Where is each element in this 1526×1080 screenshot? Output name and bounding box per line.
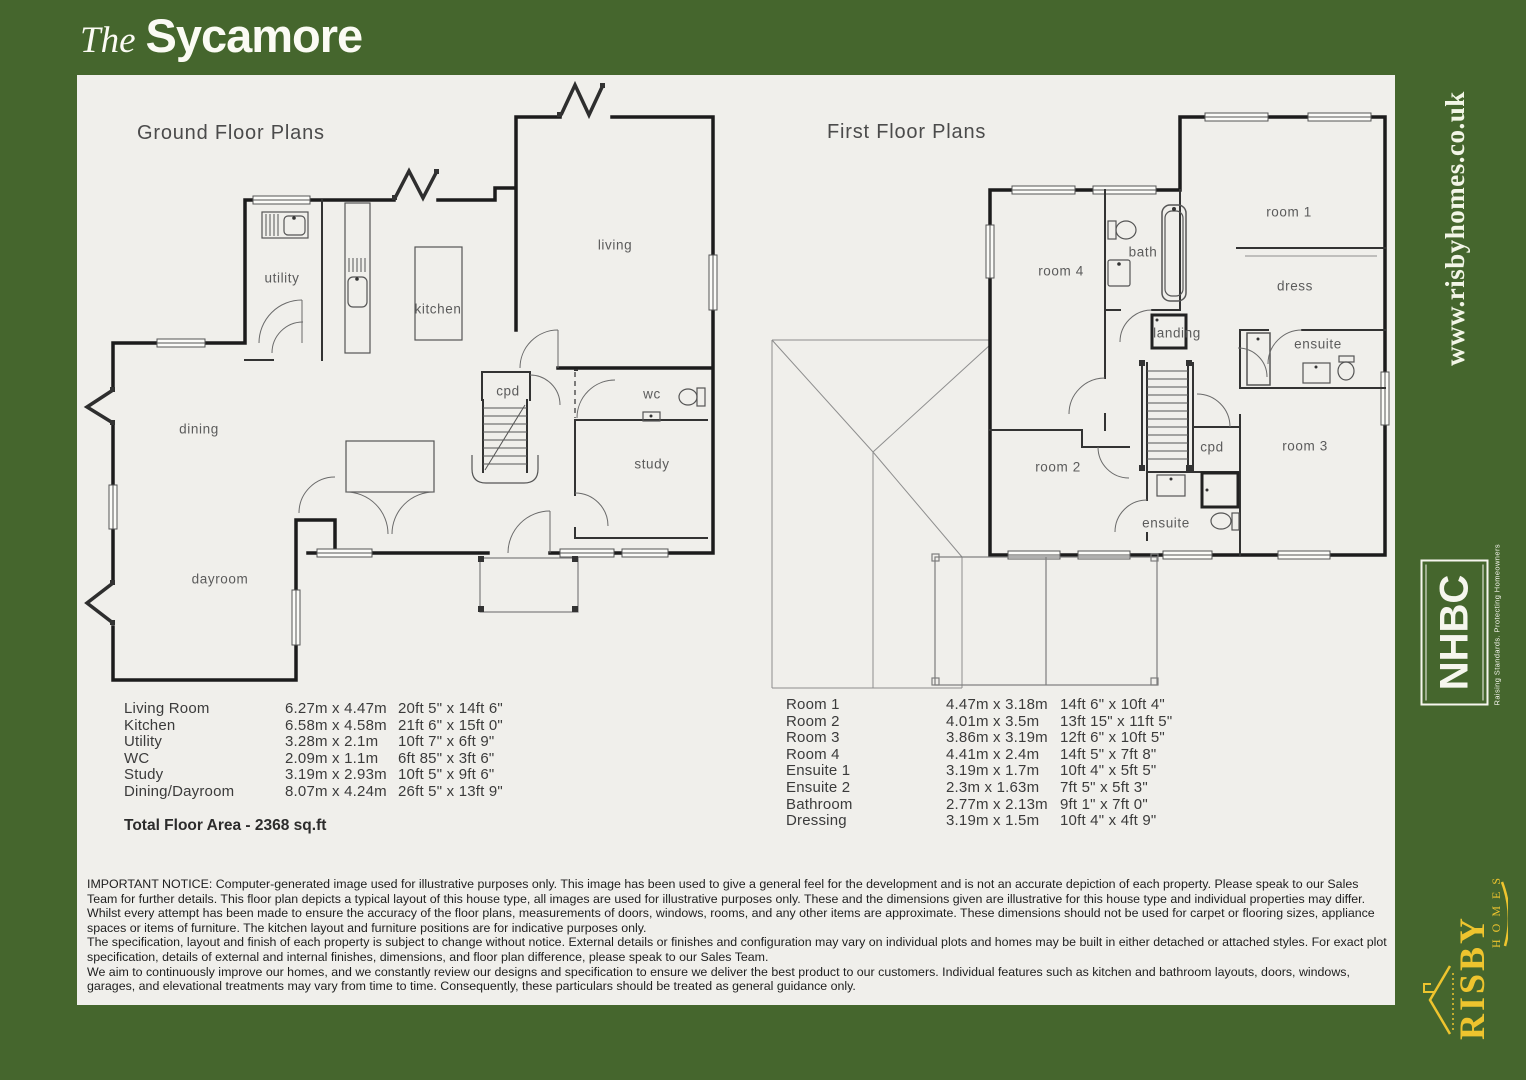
- table-cell: 7ft 5" x 5ft 3": [1060, 779, 1172, 796]
- risby-roof-icon: [1424, 966, 1453, 1034]
- table-cell: 26ft 5" x 13ft 9": [398, 783, 503, 800]
- table-cell: 14ft 6" x 10ft 4": [1060, 696, 1172, 713]
- table-cell: Kitchen: [124, 717, 285, 734]
- table-cell: 4.47m x 3.18m: [946, 696, 1060, 713]
- table-cell: 3.86m x 3.19m: [946, 729, 1060, 746]
- ground-porch: [478, 556, 578, 612]
- table-cell: Bathroom: [786, 796, 946, 813]
- risby-logo-graphic: RISBY H O M E S: [1422, 878, 1508, 1042]
- table-cell: Room 2: [786, 713, 946, 730]
- first-porch: [932, 554, 1158, 685]
- table-cell: 2.3m x 1.63m: [946, 779, 1060, 796]
- ground-closet: [346, 441, 434, 534]
- table-cell: 10ft 7" x 6ft 9": [398, 733, 503, 750]
- room-label-dining: dining: [179, 422, 219, 437]
- room-label-room2: room 2: [1035, 460, 1081, 475]
- table-cell: 4.01m x 3.5m: [946, 713, 1060, 730]
- first-dimensions-table: Room 14.47m x 3.18m14ft 6" x 10ft 4" Roo…: [786, 696, 1172, 829]
- risby-homes-logo: RISBY H O M E S: [1422, 878, 1508, 1042]
- total-floor-area: Total Floor Area - 2368 sq.ft: [124, 817, 326, 835]
- ground-dimensions-table: Living Room6.27m x 4.47m20ft 5" x 14ft 6…: [124, 700, 503, 800]
- page-title: The Sycamore: [80, 8, 362, 70]
- table-cell: 10ft 4" x 5ft 5": [1060, 762, 1172, 779]
- website-url: www.risbyhomes.co.uk: [1440, 66, 1471, 366]
- table-cell: 8.07m x 4.24m: [285, 783, 398, 800]
- table-cell: 12ft 6" x 10ft 5": [1060, 729, 1172, 746]
- table-cell: Ensuite 1: [786, 762, 946, 779]
- kitchen-island: [415, 247, 462, 340]
- nhbc-wordmark: NHBC: [1432, 575, 1477, 691]
- room-label-room4: room 4: [1038, 264, 1084, 279]
- first-stairs: [1139, 360, 1193, 471]
- table-cell: 9ft 1" x 7ft 0": [1060, 796, 1172, 813]
- first-floor-plan: [772, 113, 1389, 688]
- room-label-wc: wc: [643, 387, 661, 402]
- room-label-dress: dress: [1277, 279, 1313, 294]
- room-label-ensuite1: ensuite: [1294, 337, 1342, 352]
- table-cell: 3.19m x 1.5m: [946, 812, 1060, 829]
- room-label-ensuite2: ensuite: [1142, 516, 1190, 531]
- table-cell: WC: [124, 750, 285, 767]
- table-cell: Living Room: [124, 700, 285, 717]
- table-cell: 10ft 5" x 9ft 6": [398, 766, 503, 783]
- room-label-study: study: [634, 457, 669, 472]
- table-cell: Study: [124, 766, 285, 783]
- table-cell: 21ft 6" x 15ft 0": [398, 717, 503, 734]
- utility-sink: [262, 212, 308, 238]
- nhbc-logo-box: NHBC: [1421, 560, 1489, 706]
- table-cell: Ensuite 2: [786, 779, 946, 796]
- ground-stairs: [472, 400, 538, 483]
- room-label-living: living: [598, 238, 632, 253]
- roof-outline: [772, 340, 990, 688]
- notice-paragraph: IMPORTANT NOTICE: Computer-generated ima…: [87, 877, 1390, 935]
- table-cell: 4.41m x 2.4m: [946, 746, 1060, 763]
- room-label-cpd-first: cpd: [1200, 440, 1224, 455]
- room-label-room1: room 1: [1266, 205, 1312, 220]
- table-cell: 13ft 15" x 11ft 5": [1060, 713, 1172, 730]
- notice-paragraph: The specification, layout and finish of …: [87, 935, 1390, 964]
- table-cell: 10ft 4" x 4ft 9": [1060, 812, 1172, 829]
- room-label-bath: bath: [1129, 245, 1158, 260]
- table-cell: 6.27m x 4.47m: [285, 700, 398, 717]
- title-name: Sycamore: [146, 8, 363, 63]
- room-label-landing: landing: [1153, 326, 1201, 341]
- table-cell: Utility: [124, 733, 285, 750]
- table-cell: 6ft 85" x 3ft 6": [398, 750, 503, 767]
- floor-plan-drawings: [77, 75, 1395, 1005]
- table-cell: 3.19m x 2.93m: [285, 766, 398, 783]
- table-cell: Room 4: [786, 746, 946, 763]
- table-cell: 2.77m x 2.13m: [946, 796, 1060, 813]
- notice-paragraph: We aim to continuously improve our homes…: [87, 965, 1390, 994]
- ground-french-door-icons: [87, 83, 605, 625]
- room-label-kitchen: kitchen: [415, 302, 462, 317]
- ground-floor-title: Ground Floor Plans: [137, 122, 325, 145]
- table-cell: Dressing: [786, 812, 946, 829]
- title-prefix: The: [80, 19, 136, 62]
- room-label-room3: room 3: [1282, 439, 1328, 454]
- kitchen-counter-sink: [345, 203, 370, 353]
- ground-door-arcs: [259, 300, 615, 553]
- nhbc-tagline: Raising Standards. Protecting Homeowners: [1493, 556, 1502, 706]
- table-cell: 20ft 5" x 14ft 6": [398, 700, 503, 717]
- room-label-dayroom: dayroom: [192, 572, 249, 587]
- table-cell: 14ft 5" x 7ft 8": [1060, 746, 1172, 763]
- risby-homes-text: H O M E S: [1489, 878, 1503, 948]
- nhbc-logo: NHBC Raising Standards. Protecting Homeo…: [1421, 556, 1506, 706]
- important-notice: IMPORTANT NOTICE: Computer-generated ima…: [87, 877, 1390, 994]
- first-floor-title: First Floor Plans: [827, 121, 986, 144]
- table-cell: 2.09m x 1.1m: [285, 750, 398, 767]
- table-cell: 3.19m x 1.7m: [946, 762, 1060, 779]
- risby-wordmark: RISBY: [1452, 915, 1492, 1040]
- table-cell: 3.28m x 2.1m: [285, 733, 398, 750]
- brochure-page: The Sycamore: [0, 0, 1526, 1080]
- room-label-cpd-ground: cpd: [496, 384, 520, 399]
- table-cell: Room 1: [786, 696, 946, 713]
- table-cell: Room 3: [786, 729, 946, 746]
- room-label-utility: utility: [265, 271, 300, 286]
- table-cell: Dining/Dayroom: [124, 783, 285, 800]
- table-cell: 6.58m x 4.58m: [285, 717, 398, 734]
- ground-floor-plan: [87, 83, 717, 680]
